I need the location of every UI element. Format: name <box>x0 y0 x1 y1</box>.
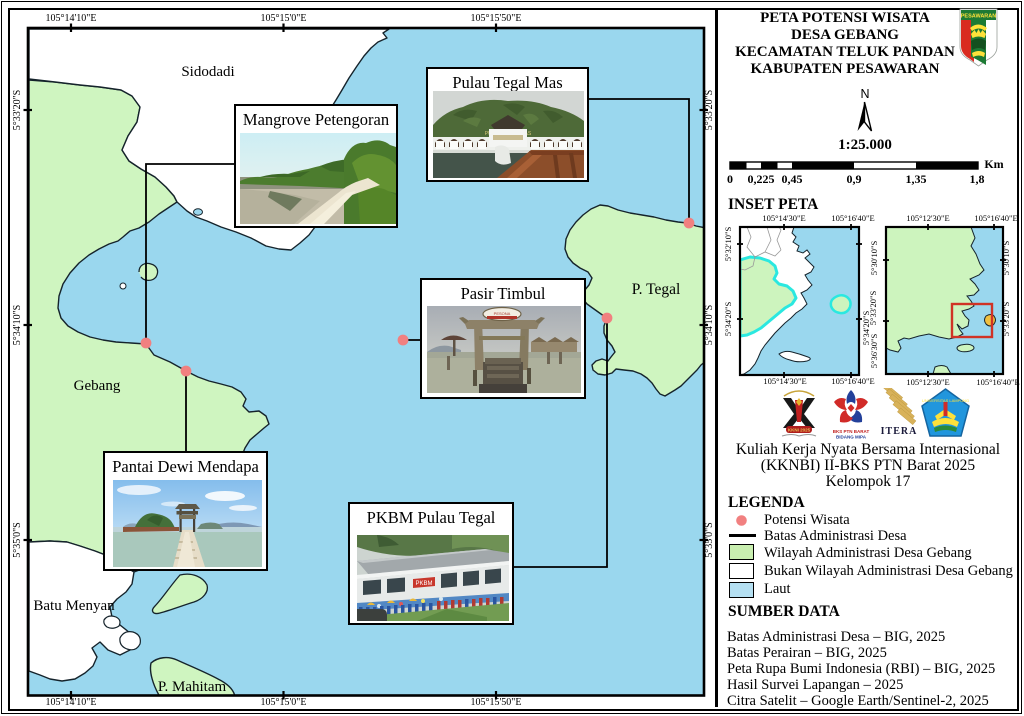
svg-text:5°30'10"S: 5°30'10"S <box>869 241 879 276</box>
svg-text:Batu Menyan: Batu Menyan <box>33 598 115 614</box>
svg-text:105°14'10"E: 105°14'10"E <box>46 13 97 24</box>
svg-text:0,225: 0,225 <box>748 172 775 186</box>
svg-text:5°36'30"S: 5°36'30"S <box>869 334 879 369</box>
svg-text:0,9: 0,9 <box>847 172 862 186</box>
svg-text:Sidodadi: Sidodadi <box>181 64 234 80</box>
svg-text:1,8: 1,8 <box>970 172 985 186</box>
svg-text:P. Mahitam: P. Mahitam <box>158 679 227 695</box>
svg-text:105°12'30"E: 105°12'30"E <box>906 213 949 223</box>
svg-text:105°14'30"E: 105°14'30"E <box>763 376 806 386</box>
svg-text:105°15'0"E: 105°15'0"E <box>261 697 307 708</box>
svg-text:105°15'0"E: 105°15'0"E <box>261 13 307 24</box>
svg-text:Gebang: Gebang <box>74 378 121 394</box>
svg-text:Km: Km <box>984 157 1003 171</box>
svg-text:PKBM: PKBM <box>415 581 432 587</box>
svg-text:105°14'30"E: 105°14'30"E <box>762 213 805 223</box>
svg-text:5°33'20"S: 5°33'20"S <box>1001 302 1011 337</box>
svg-text:105°15'50"E: 105°15'50"E <box>471 13 522 24</box>
svg-text:P. Tegal: P. Tegal <box>632 281 681 298</box>
svg-text:5°33'20"S: 5°33'20"S <box>704 90 715 130</box>
svg-text:1,35: 1,35 <box>906 172 927 186</box>
svg-text:5°34'10"S: 5°34'10"S <box>12 305 23 345</box>
svg-text:0,45: 0,45 <box>782 172 803 186</box>
svg-text:5°33'20"S: 5°33'20"S <box>12 90 23 130</box>
svg-text:5°32'10"S: 5°32'10"S <box>723 227 733 262</box>
svg-text:5°34'10"S: 5°34'10"S <box>704 305 715 345</box>
svg-text:105°14'10"E: 105°14'10"E <box>46 697 97 708</box>
svg-text:105°15'50"E: 105°15'50"E <box>471 697 522 708</box>
svg-text:105°16'40"E: 105°16'40"E <box>976 377 1019 387</box>
svg-text:5°30'10"S: 5°30'10"S <box>1001 241 1011 276</box>
svg-text:BIDANG MIPA: BIDANG MIPA <box>836 435 867 440</box>
svg-text:KKNI 2025: KKNI 2025 <box>788 428 811 433</box>
svg-text:5°35'0"S: 5°35'0"S <box>704 522 715 557</box>
svg-text:105°12'30"E: 105°12'30"E <box>906 377 949 387</box>
svg-text:5°35'0"S: 5°35'0"S <box>12 522 23 557</box>
svg-text:0: 0 <box>727 172 733 186</box>
svg-text:105°16'40"E: 105°16'40"E <box>831 376 874 386</box>
svg-text:105°16'40"E: 105°16'40"E <box>831 213 874 223</box>
svg-text:ITERA: ITERA <box>881 426 918 437</box>
svg-text:PESAWARAN: PESAWARAN <box>961 14 996 20</box>
svg-text:BKS PTN BARAT: BKS PTN BARAT <box>833 429 870 434</box>
svg-text:PESONA: PESONA <box>494 311 511 316</box>
svg-text:5°34'20"S: 5°34'20"S <box>723 302 733 337</box>
svg-text:105°16'40"E: 105°16'40"E <box>974 213 1017 223</box>
